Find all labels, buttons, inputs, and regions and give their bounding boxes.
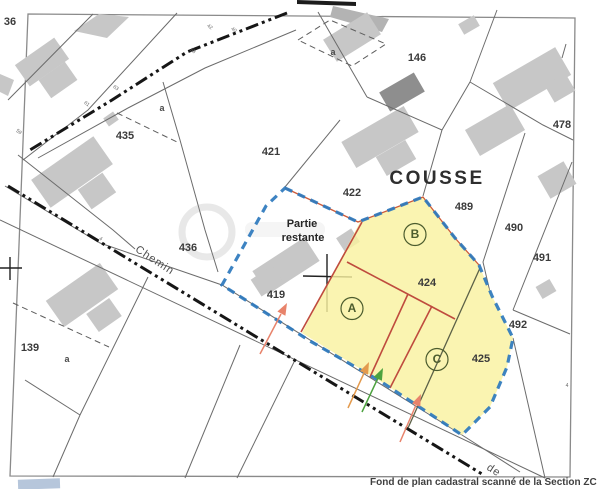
parcel-478: 478 — [553, 119, 571, 131]
building — [0, 74, 14, 96]
svg-text:C: C — [433, 352, 442, 366]
svg-text:436: 436 — [179, 242, 197, 254]
svg-text:4: 4 — [566, 383, 569, 389]
svg-text:491: 491 — [533, 252, 551, 264]
svg-text:435: 435 — [116, 130, 134, 142]
svg-text:COUSSE: COUSSE — [389, 168, 484, 189]
parcel-4-partial: 4 — [566, 383, 569, 389]
parcel-36: 36 — [4, 16, 16, 28]
parcel-489: 489 — [455, 201, 473, 213]
parcel-139: 139 — [21, 342, 39, 354]
cadastral-map-viewer: 36435aa146478421422COUSSE489490491492424… — [0, 0, 600, 489]
parcel-492: 492 — [509, 319, 527, 331]
road-marker-59: 59 — [15, 128, 23, 136]
svg-text:478: 478 — [553, 119, 571, 131]
parcel-422: 422 — [343, 187, 361, 199]
parcel-435: 435 — [116, 130, 134, 142]
svg-text:425: 425 — [472, 353, 490, 365]
svg-text:139: 139 — [21, 342, 39, 354]
svg-text:B: B — [411, 227, 420, 241]
svg-text:490: 490 — [505, 222, 523, 234]
parcel-424: 424 — [418, 277, 437, 289]
label-restante: restante — [282, 232, 325, 244]
svg-text:A: A — [348, 301, 357, 315]
parcel-421: 421 — [262, 146, 280, 158]
svg-text:Partie: Partie — [287, 218, 318, 230]
svg-text:422: 422 — [343, 187, 361, 199]
svg-text:restante: restante — [282, 232, 325, 244]
svg-text:489: 489 — [455, 201, 473, 213]
svg-text:59: 59 — [15, 128, 23, 136]
label-partie: Partie — [287, 218, 318, 230]
parcel-490: 490 — [505, 222, 523, 234]
parcel-425: 425 — [472, 353, 490, 365]
place-cousse: COUSSE — [389, 168, 484, 189]
parcel-436: 436 — [179, 242, 197, 254]
map-caption: Fond de plan cadastral scanné de la Sect… — [370, 477, 600, 488]
svg-text:36: 36 — [4, 16, 16, 28]
parcel-146: 146 — [408, 52, 426, 64]
svg-text:419: 419 — [267, 289, 285, 301]
svg-text:146: 146 — [408, 52, 426, 64]
svg-text:424: 424 — [418, 277, 437, 289]
parcel-419: 419 — [267, 289, 285, 301]
cadastral-map: 36435aa146478421422COUSSE489490491492424… — [0, 0, 600, 489]
parcel-491: 491 — [533, 252, 551, 264]
svg-text:492: 492 — [509, 319, 527, 331]
svg-text:421: 421 — [262, 146, 280, 158]
